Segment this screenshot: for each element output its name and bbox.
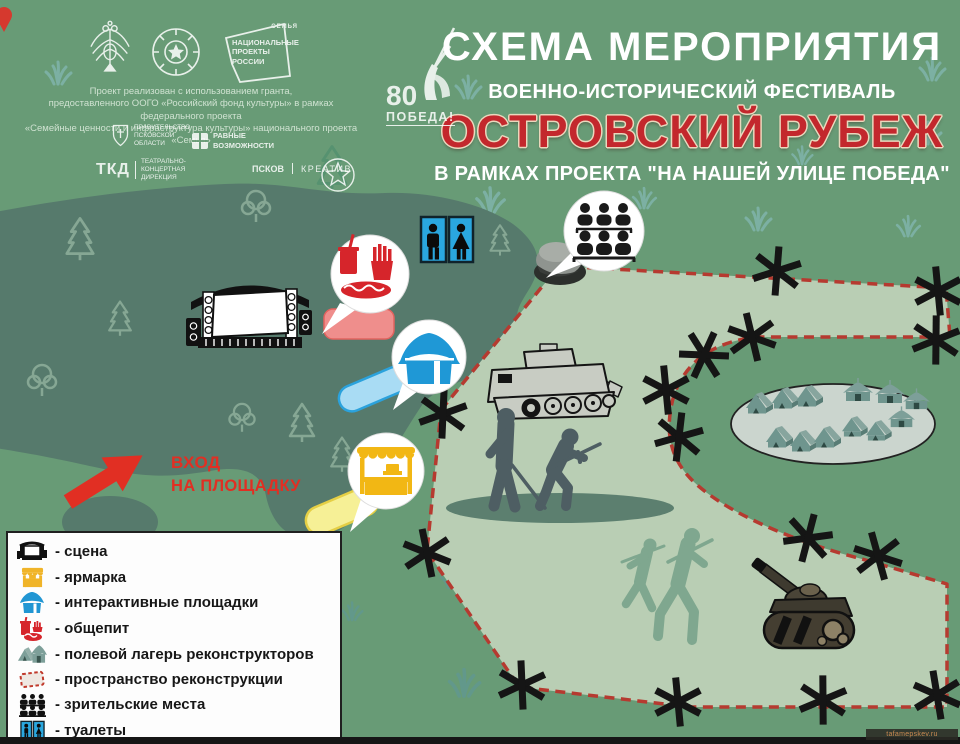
national-projects-logo: НАЦИОНАЛЬНЫЕ ПРОЕКТЫ РОССИИ СЕМЬЯ bbox=[218, 22, 298, 86]
stage-icon bbox=[186, 285, 312, 348]
grant-note: Проект реализован с использованием грант… bbox=[16, 86, 366, 148]
event-scheme-poster: СХЕМА МЕРОПРИЯТИЯ ВОЕННО-ИСТОРИЧЕСКИЙ ФЕ… bbox=[0, 0, 960, 744]
medal-icon bbox=[150, 26, 202, 78]
legend-item-interactive: - интерактивные площадки bbox=[16, 592, 336, 614]
legend-item-reconstruction: - пространство реконструкции bbox=[16, 668, 336, 690]
stage-legend-icon bbox=[16, 539, 48, 563]
page-title: СХЕМА МЕРОПРИЯТИЯ bbox=[428, 26, 956, 68]
legend-item-camp: - полевой лагерь реконструкторов bbox=[16, 643, 336, 665]
legend-item-stage: - сцена bbox=[16, 539, 336, 563]
dark-clearing bbox=[446, 493, 674, 523]
legend-item-audience: - зрительские места bbox=[16, 693, 336, 717]
victory-80-number: 80 bbox=[386, 80, 417, 112]
victory-80-logo: 80 ПОБЕДА! bbox=[386, 26, 462, 126]
theatre-directorate-logo: ТКД ТЕАТРАЛЬНО- КОНЦЕРТНАЯ ДИРЕКЦИЯ bbox=[96, 158, 186, 182]
entrance-label: ВХОД НА ПЛОЩАДКУ bbox=[171, 451, 301, 498]
header: СХЕМА МЕРОПРИЯТИЯ ВОЕННО-ИСТОРИЧЕСКИЙ ФЕ… bbox=[428, 26, 956, 186]
divider bbox=[292, 163, 293, 174]
victory-80-label: ПОБЕДА! bbox=[386, 110, 455, 126]
pskov-government-logo: ПРАВИТЕЛЬСТВО ПСКОВСКОЙ ОБЛАСТИ bbox=[112, 124, 190, 148]
festival-subtitle: ВОЕННО-ИСТОРИЧЕСКИЙ ФЕСТИВАЛЬ bbox=[428, 81, 956, 104]
wc-signs bbox=[421, 217, 473, 262]
national-projects-label: НАЦИОНАЛЬНЫЕ ПРОЕКТЫ РОССИИ bbox=[232, 38, 299, 66]
audience-icon bbox=[573, 203, 635, 262]
legend-item-food: - общепит bbox=[16, 617, 336, 641]
watermark: tafamepskev.ru bbox=[866, 729, 958, 740]
camp-legend-icon bbox=[16, 643, 48, 665]
window-icon bbox=[192, 133, 208, 149]
pskov-government-label: ПРАВИТЕЛЬСТВО ПСКОВСКОЙ ОБЛАСТИ bbox=[134, 124, 190, 148]
project-line: В РАМКАХ ПРОЕКТА "НА НАШЕЙ УЛИЦЕ ПОБЕДА" bbox=[428, 163, 956, 186]
food-legend-icon bbox=[16, 617, 48, 641]
equal-opportunities-label: РАВНЫЕ ВОЗМОЖНОСТИ bbox=[213, 131, 274, 151]
audience-legend-icon bbox=[16, 693, 48, 717]
tkd-abbr: ТКД bbox=[96, 161, 136, 179]
pskov-crest-icon bbox=[112, 124, 129, 148]
tkd-label: ТЕАТРАЛЬНО- КОНЦЕРТНАЯ ДИРЕКЦИЯ bbox=[141, 158, 186, 182]
family-tag: СЕМЬЯ bbox=[271, 24, 298, 30]
legend-item-fair: - ярмарка bbox=[16, 566, 336, 589]
event-name: ОСТРОВСКИЙ РУБЕЖ bbox=[428, 106, 956, 158]
coat-of-arms-icon bbox=[84, 20, 136, 82]
bottom-border bbox=[0, 737, 960, 744]
equal-opportunities-logo: РАВНЫЕ ВОЗМОЖНОСТИ bbox=[192, 131, 274, 151]
star-circle-logo bbox=[320, 155, 356, 195]
reconstruction-legend-icon bbox=[16, 668, 48, 690]
interactive-legend-icon bbox=[16, 592, 48, 614]
fair-legend-icon bbox=[16, 566, 48, 589]
legend: - сцена - ярмарка bbox=[6, 531, 342, 744]
